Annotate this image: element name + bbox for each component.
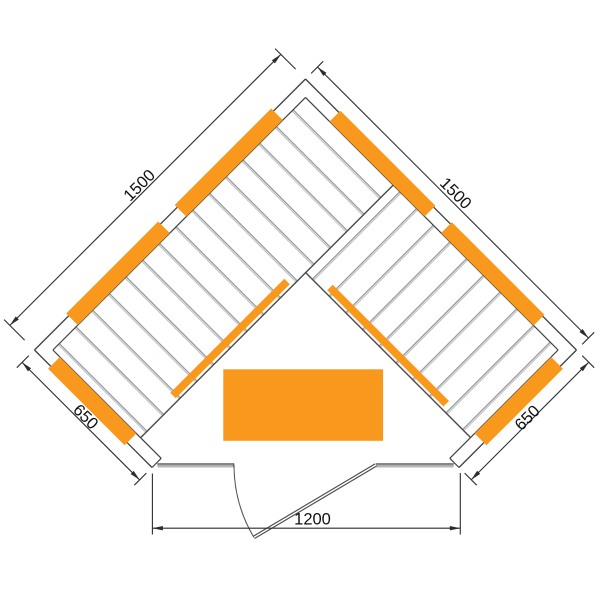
svg-text:1200: 1200 — [294, 510, 331, 528]
